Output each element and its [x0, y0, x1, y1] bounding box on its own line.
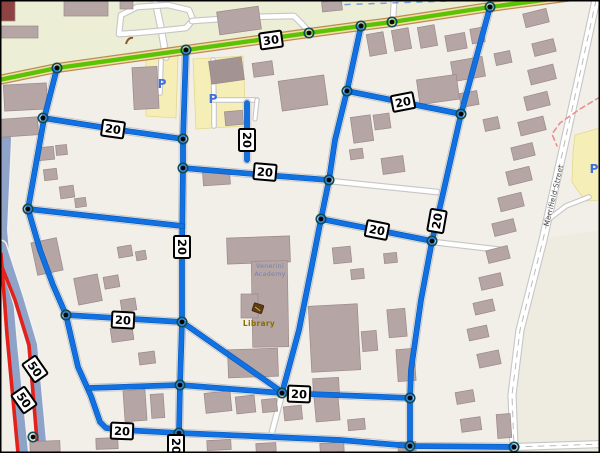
route-node[interactable]: [307, 31, 312, 36]
maxspeed-badge-20[interactable]: 20: [288, 386, 311, 403]
building: [350, 115, 373, 144]
building: [224, 110, 243, 126]
route-node[interactable]: [488, 5, 493, 10]
building: [351, 268, 365, 279]
route-node[interactable]: [184, 48, 189, 53]
route-node[interactable]: [459, 112, 464, 117]
building: [381, 156, 405, 175]
route-node[interactable]: [41, 116, 46, 121]
maxspeed-value: 20: [429, 212, 446, 230]
building: [308, 304, 360, 372]
building: [0, 26, 38, 38]
maxspeed-value: 20: [175, 239, 189, 255]
maxspeed-value: 20: [394, 94, 412, 111]
building: [313, 377, 340, 393]
maxspeed-badge-20[interactable]: 20: [365, 220, 390, 240]
building: [103, 275, 120, 289]
route-node[interactable]: [181, 137, 186, 142]
route-node[interactable]: [180, 320, 185, 325]
building: [0, 117, 39, 138]
route-node[interactable]: [359, 24, 364, 29]
maxspeed-badge-20[interactable]: 20: [427, 209, 447, 233]
route-node[interactable]: [408, 444, 413, 449]
building: [261, 398, 277, 412]
parking-icon: P: [209, 92, 218, 106]
building: [417, 25, 437, 49]
building: [204, 391, 232, 414]
route-node[interactable]: [31, 435, 36, 440]
building: [43, 168, 57, 181]
building: [348, 418, 366, 430]
building: [74, 274, 103, 305]
route-node[interactable]: [319, 217, 324, 222]
route-node[interactable]: [430, 239, 435, 244]
road: [255, 100, 257, 119]
building: [256, 442, 276, 452]
route-node[interactable]: [512, 445, 517, 450]
building: [332, 246, 352, 264]
building: [373, 113, 391, 130]
maxspeed-value: 20: [169, 438, 183, 453]
route-node[interactable]: [327, 178, 332, 183]
academy-label-line2: Academy: [254, 271, 285, 278]
route-node[interactable]: [345, 89, 350, 94]
building: [322, 0, 343, 12]
maxspeed-value: 20: [291, 387, 307, 402]
maxspeed-badge-30[interactable]: 30: [259, 31, 283, 50]
building: [135, 250, 146, 261]
maxspeed-badge-20[interactable]: 20: [168, 435, 184, 453]
building: [132, 66, 159, 109]
building: [138, 351, 155, 365]
maxspeed-badge-20[interactable]: 20: [239, 129, 255, 151]
route-node[interactable]: [178, 383, 183, 388]
building: [0, 0, 15, 21]
building: [123, 389, 147, 421]
building: [64, 0, 108, 16]
maxspeed-value: 20: [256, 165, 273, 180]
route-node[interactable]: [55, 66, 60, 71]
building: [416, 74, 459, 104]
building: [496, 414, 512, 439]
parking-icon: P: [158, 77, 167, 91]
building: [366, 32, 387, 57]
building: [59, 185, 75, 199]
route-node[interactable]: [280, 391, 285, 396]
maxspeed-value: 20: [115, 313, 132, 328]
maxspeed-badge-20[interactable]: 20: [391, 92, 416, 112]
route-node[interactable]: [26, 207, 31, 212]
maxspeed-value: 20: [114, 424, 130, 439]
building: [150, 394, 165, 419]
maxspeed-value: 20: [240, 132, 254, 148]
map-canvas[interactable]: 3020202020202020202020205050Merrifield S…: [0, 0, 600, 453]
building: [460, 417, 482, 433]
building: [391, 28, 411, 52]
building: [235, 395, 256, 414]
maxspeed-badge-20[interactable]: 20: [253, 163, 276, 181]
building: [314, 394, 340, 422]
maxspeed-value: 30: [262, 32, 280, 48]
maxspeed-badge-20[interactable]: 20: [111, 423, 134, 440]
route-node[interactable]: [408, 396, 413, 401]
building: [117, 245, 133, 258]
building: [283, 405, 302, 421]
building: [361, 330, 378, 351]
building: [74, 197, 86, 207]
map-viewport[interactable]: 3020202020202020202020205050Merrifield S…: [0, 0, 600, 453]
maxspeed-badge-20[interactable]: 20: [174, 236, 190, 258]
building: [278, 75, 328, 111]
route-node[interactable]: [181, 166, 186, 171]
building: [120, 1, 133, 9]
route-node[interactable]: [64, 313, 69, 318]
building: [384, 252, 398, 263]
building: [252, 61, 274, 78]
maxspeed-badge-20[interactable]: 20: [112, 311, 135, 328]
building: [207, 439, 231, 450]
maxspeed-value: 20: [368, 222, 386, 239]
route-node[interactable]: [390, 20, 395, 25]
building: [120, 298, 137, 312]
library-label: Library: [243, 319, 275, 328]
building: [209, 57, 245, 84]
parking-icon: P: [590, 162, 599, 176]
building: [483, 117, 500, 132]
building: [3, 83, 47, 111]
building: [445, 32, 467, 51]
building: [320, 442, 344, 452]
building: [349, 148, 363, 160]
building: [227, 236, 291, 264]
building: [387, 308, 407, 337]
building: [56, 144, 68, 155]
maxspeed-value: 20: [104, 121, 122, 137]
academy-label-line1: Venerini: [256, 263, 284, 270]
maxspeed-badge-20[interactable]: 20: [101, 120, 125, 139]
